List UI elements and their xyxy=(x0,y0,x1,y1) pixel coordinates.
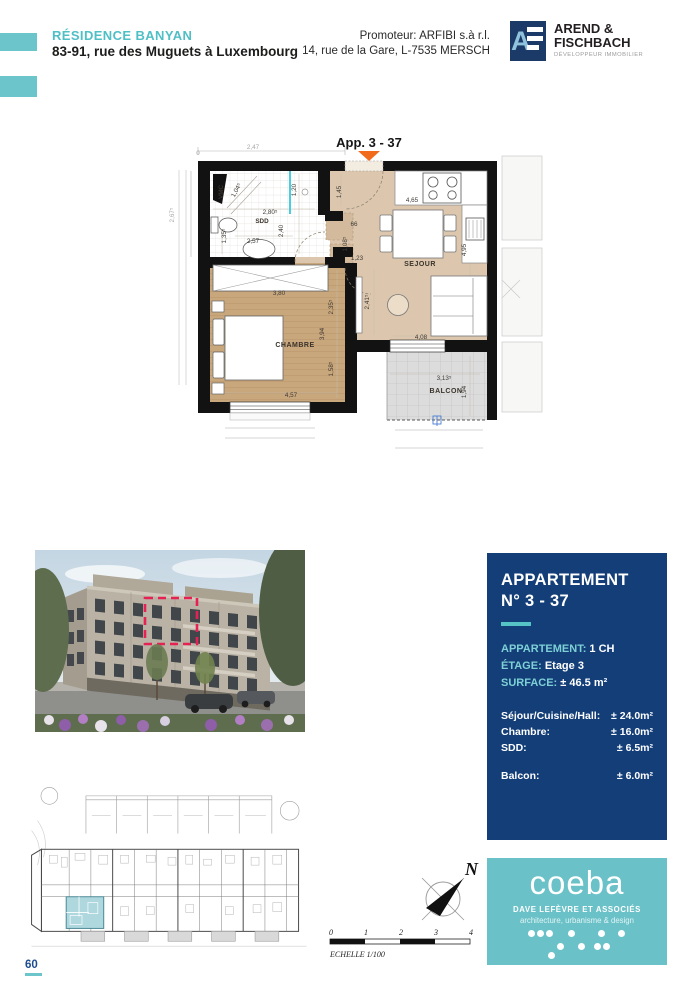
coffee-table xyxy=(388,295,409,316)
spec-list: APPARTEMENT: 1 CH ÉTAGE: Etage 3 SURFACE… xyxy=(501,641,653,692)
plan-label: CHAMBRE xyxy=(275,342,314,349)
pillow xyxy=(213,352,224,378)
plan-label: 4,57 xyxy=(285,392,298,399)
chair xyxy=(380,215,392,231)
plan-label: BALCON xyxy=(430,388,463,395)
bed xyxy=(225,316,283,380)
chair xyxy=(380,236,392,252)
logo-dot xyxy=(618,930,625,937)
area-row: SDD:± 6.5m² xyxy=(501,740,653,756)
developer-logo-mark: A xyxy=(510,21,546,61)
scale-label: ECHELLE 1/100 xyxy=(329,950,385,959)
teal-square-decor xyxy=(0,76,37,97)
logo-bar xyxy=(527,27,543,32)
spec-row: APPARTEMENT: 1 CH xyxy=(501,641,653,658)
logo-bar xyxy=(527,36,543,41)
teal-square-decor xyxy=(0,33,37,51)
plan-label: 1,94 xyxy=(461,385,468,398)
sofa xyxy=(431,276,487,336)
building-photo xyxy=(35,550,305,732)
chair xyxy=(444,215,456,231)
plan-label: SEJOUR xyxy=(404,261,436,268)
kitchen-sink xyxy=(466,218,484,240)
panel-title-rule xyxy=(501,622,531,626)
plan-label: 4,08 xyxy=(415,334,428,341)
plan-label: 1,20 xyxy=(291,183,298,196)
logo-dot xyxy=(594,943,601,950)
logo-dot xyxy=(568,930,575,937)
site-plan-highlight xyxy=(66,897,104,929)
logo-dot xyxy=(578,943,585,950)
scale-tick: 3 xyxy=(433,928,438,937)
plan-label: 3,94 xyxy=(319,327,326,340)
pillow xyxy=(213,319,224,345)
apartment-info-panel: APPARTEMENT N° 3 - 37 APPARTEMENT: 1 CH … xyxy=(487,553,667,840)
plan-label: 2,80⁵ xyxy=(263,209,278,216)
promoter-line1: Promoteur: ARFIBI s.à r.l. xyxy=(295,29,490,44)
architect-logo-subtitle: DAVE LEFÈVRE ET ASSOCIÉS xyxy=(487,905,667,914)
panel-title: APPARTEMENT N° 3 - 37 xyxy=(501,570,653,612)
plan-label: SDD xyxy=(255,218,269,225)
plan-label: 2,35⁵ xyxy=(328,299,335,314)
project-title: RÉSIDENCE BANYAN xyxy=(52,28,192,43)
balcony-grid xyxy=(387,352,487,420)
plan-label: 2,67⁵ xyxy=(169,207,176,222)
logo-dot xyxy=(557,943,564,950)
area-row: Chambre:± 16.0m² xyxy=(501,724,653,740)
plan-label: 2,57 xyxy=(247,238,260,245)
north-compass-icon: N xyxy=(413,855,488,925)
page-number: 60 xyxy=(25,959,42,976)
logo-dot xyxy=(546,930,553,937)
scale-bar: 01234 ECHELLE 1/100 xyxy=(328,926,478,962)
toilet-tank xyxy=(211,217,218,233)
scale-tick: 2 xyxy=(399,928,403,937)
promoter-line2: 14, rue de la Gare, L-7535 MERSCH xyxy=(295,44,490,59)
north-arrow xyxy=(426,879,463,916)
plan-label: 2,41⁵ xyxy=(364,294,371,309)
nightstand xyxy=(212,301,224,312)
plan-label: 1,35⁵ xyxy=(221,228,228,243)
scale-tick: 0 xyxy=(329,928,333,937)
developer-tagline: DÉVELOPPEUR IMMOBILIER xyxy=(554,52,643,58)
north-label: N xyxy=(464,859,479,879)
plan-label: 2,40 xyxy=(278,224,285,237)
plan-label: 4,95 xyxy=(461,243,468,256)
dining-table xyxy=(393,210,443,258)
plan-label: 1,23 xyxy=(351,255,364,262)
brochure-page: RÉSIDENCE BANYAN 83-91, rue des Muguets … xyxy=(0,0,700,1004)
scale-tick-labels: 01234 xyxy=(329,928,473,937)
promoter-block: Promoteur: ARFIBI s.à r.l. 14, rue de la… xyxy=(295,29,490,59)
flower-bed xyxy=(35,714,305,732)
plan-label: 66 xyxy=(350,221,358,228)
apartment-marker-triangle xyxy=(358,151,380,161)
area-row: Séjour/Cuisine/Hall:± 24.0m² xyxy=(501,708,653,724)
floor-plan: App. 3 - 3702,472,67⁵VMC1,04⁵2,80⁵1,202,… xyxy=(165,130,545,470)
entrance-opening xyxy=(345,161,383,171)
spec-row: SURFACE: ± 46.5 m² xyxy=(501,675,653,692)
plan-label: 3,13⁵ xyxy=(437,375,452,382)
plan-label: 4,65 xyxy=(406,197,419,204)
logo-dot xyxy=(537,930,544,937)
stove xyxy=(423,173,461,203)
plan-label: VMC xyxy=(218,185,225,199)
architect-logo: coeba DAVE LEFÈVRE ET ASSOCIÉS architect… xyxy=(487,858,667,965)
scale-tick: 4 xyxy=(469,928,473,937)
plan-label: 0 xyxy=(196,150,200,157)
tv-board xyxy=(356,277,362,333)
plan-label: App. 3 - 37 xyxy=(336,135,402,150)
chair xyxy=(444,236,456,252)
site-plan xyxy=(28,786,313,964)
logo-dot xyxy=(603,943,610,950)
logo-dot xyxy=(598,930,605,937)
area-list: Séjour/Cuisine/Hall:± 24.0m² Chambre:± 1… xyxy=(501,708,653,784)
project-address: 83-91, rue des Muguets à Luxembourg xyxy=(52,44,298,59)
scale-tick: 1 xyxy=(364,928,368,937)
plan-label: 1,08⁵ xyxy=(342,236,349,251)
plan-label: 1,58⁵ xyxy=(328,361,335,376)
logo-dot xyxy=(528,930,535,937)
nightstand xyxy=(212,383,224,394)
developer-logo: A AREND & FISCHBACH DÉVELOPPEUR IMMOBILI… xyxy=(510,21,690,67)
plan-label: 1,45 xyxy=(336,185,343,198)
architect-logo-tagline: architecture, urbanisme & design xyxy=(487,916,667,925)
architect-logo-name: coeba xyxy=(487,864,667,902)
logo-dot xyxy=(548,952,555,959)
logo-bar xyxy=(527,45,539,50)
plan-label: 3,80 xyxy=(273,290,286,297)
spec-row: ÉTAGE: Etage 3 xyxy=(501,658,653,675)
developer-name: AREND & FISCHBACH xyxy=(554,22,631,50)
plan-label: 2,47 xyxy=(247,144,260,151)
area-row: Balcon:± 6.0m² xyxy=(501,768,653,784)
